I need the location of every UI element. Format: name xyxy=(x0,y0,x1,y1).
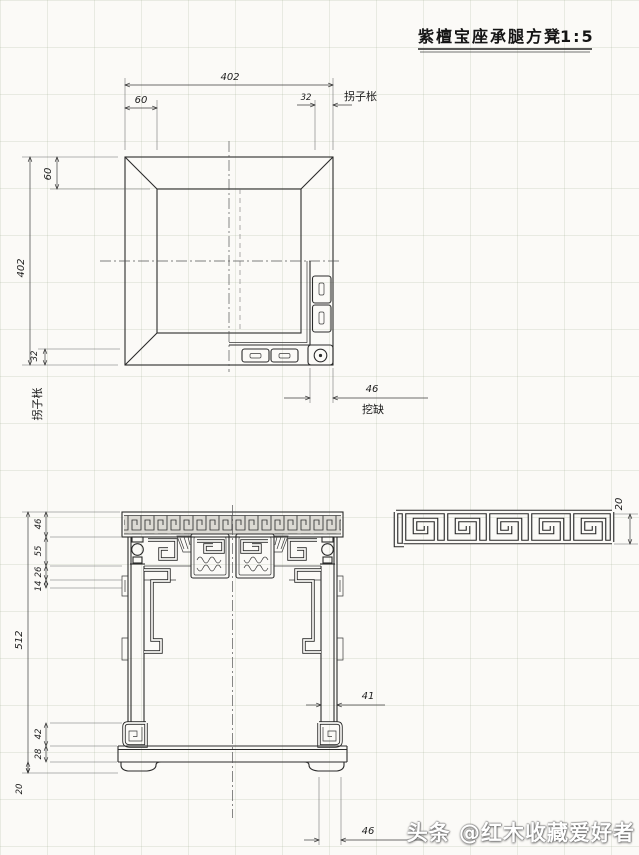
tenon-slot xyxy=(279,354,290,359)
dim-base: 28 xyxy=(34,748,44,759)
dim-base-foot: 20 xyxy=(15,784,25,795)
dim-foot-scroll: 42 xyxy=(34,729,44,740)
plan-dimensions-left: 402 60 32 拐子枨 xyxy=(16,157,150,421)
elevation-right-half xyxy=(236,534,344,771)
panel-key-scroll xyxy=(197,541,223,552)
dim-plan-height: 402 xyxy=(16,258,27,277)
plan-dimensions-top: 402 60 32 拐子枨 xyxy=(125,72,377,150)
leg-outer-ornament xyxy=(122,576,128,660)
drawing-scale: 1:5 xyxy=(560,27,595,46)
blueprint-page: { "title": { "text": "紫檀宝座承腿方凳", "scale"… xyxy=(0,0,639,855)
stretcher-inner-edge xyxy=(229,261,310,345)
drawing-title: 紫檀宝座承腿方凳 xyxy=(418,27,562,46)
stretcher-section-bottom-2 xyxy=(271,349,298,362)
baluster-base xyxy=(133,557,142,563)
bracket-foot xyxy=(121,762,161,771)
dim-bracket: 14 xyxy=(34,581,44,592)
plan-dimension-leg: 46 挖缺 xyxy=(284,368,428,416)
watermark: 头条 @红木收藏爱好者 xyxy=(407,817,635,847)
tenon-slot xyxy=(319,312,324,324)
tenon-slot xyxy=(319,283,324,295)
meander-pattern-detail: 20 xyxy=(396,498,638,545)
tenon-slot xyxy=(250,354,261,359)
dim-leg-width: 41 xyxy=(362,691,375,702)
dim-plan-width: 402 xyxy=(220,72,239,83)
elevation-dimension-leg: 41 xyxy=(306,691,385,705)
stretcher-section-right-2 xyxy=(313,305,332,332)
elevation-left-half xyxy=(121,534,229,771)
dim-seat: 46 xyxy=(34,518,44,529)
technical-drawing: 紫檀宝座承腿方凳 1:5 xyxy=(0,0,639,855)
dim-pattern-height: 20 xyxy=(614,498,625,511)
dim-waist: 55 xyxy=(34,546,44,557)
dim-leg-block: 46 xyxy=(366,384,379,395)
foot-spiral xyxy=(129,727,142,741)
dim-apron: 26 xyxy=(34,566,44,577)
scroll-foot xyxy=(124,723,146,746)
dim-plan-stretcher-left: 32 xyxy=(30,351,40,362)
stretcher-section-bottom-1 xyxy=(242,349,269,362)
label-stretcher-left: 拐子枨 xyxy=(30,388,44,421)
dim-plan-stretcher-top: 32 xyxy=(301,93,312,103)
mitre-cap-hatched xyxy=(177,536,191,552)
dim-plan-frame-top: 60 xyxy=(135,95,148,106)
dim-foot-width: 46 xyxy=(362,826,375,837)
front-elevation: 46 55 26 14 512 42 28 20 41 46 xyxy=(14,505,425,845)
label-leg-block: 挖缺 xyxy=(362,402,384,416)
elevation-dimensions-left: 46 55 26 14 512 42 28 20 xyxy=(14,512,122,794)
baluster-sphere xyxy=(132,544,144,556)
plan-leg-stretcher-detail xyxy=(229,261,333,365)
stretcher-inner-edge-bead xyxy=(229,261,307,343)
stretcher-section-right-1 xyxy=(313,276,332,303)
dim-total-height: 512 xyxy=(14,630,25,649)
panel-carving xyxy=(197,557,221,571)
leg-dowel-center xyxy=(319,354,322,357)
leg-lines xyxy=(128,537,144,723)
dim-plan-frame-left: 60 xyxy=(43,168,54,181)
plan-view: 402 60 32 拐子枨 402 60 32 拐子枨 46 挖缺 xyxy=(16,72,428,421)
label-stretcher-top: 拐子枨 xyxy=(344,89,377,103)
baluster-cap xyxy=(132,537,143,542)
title-block: 紫檀宝座承腿方凳 1:5 xyxy=(418,27,595,52)
